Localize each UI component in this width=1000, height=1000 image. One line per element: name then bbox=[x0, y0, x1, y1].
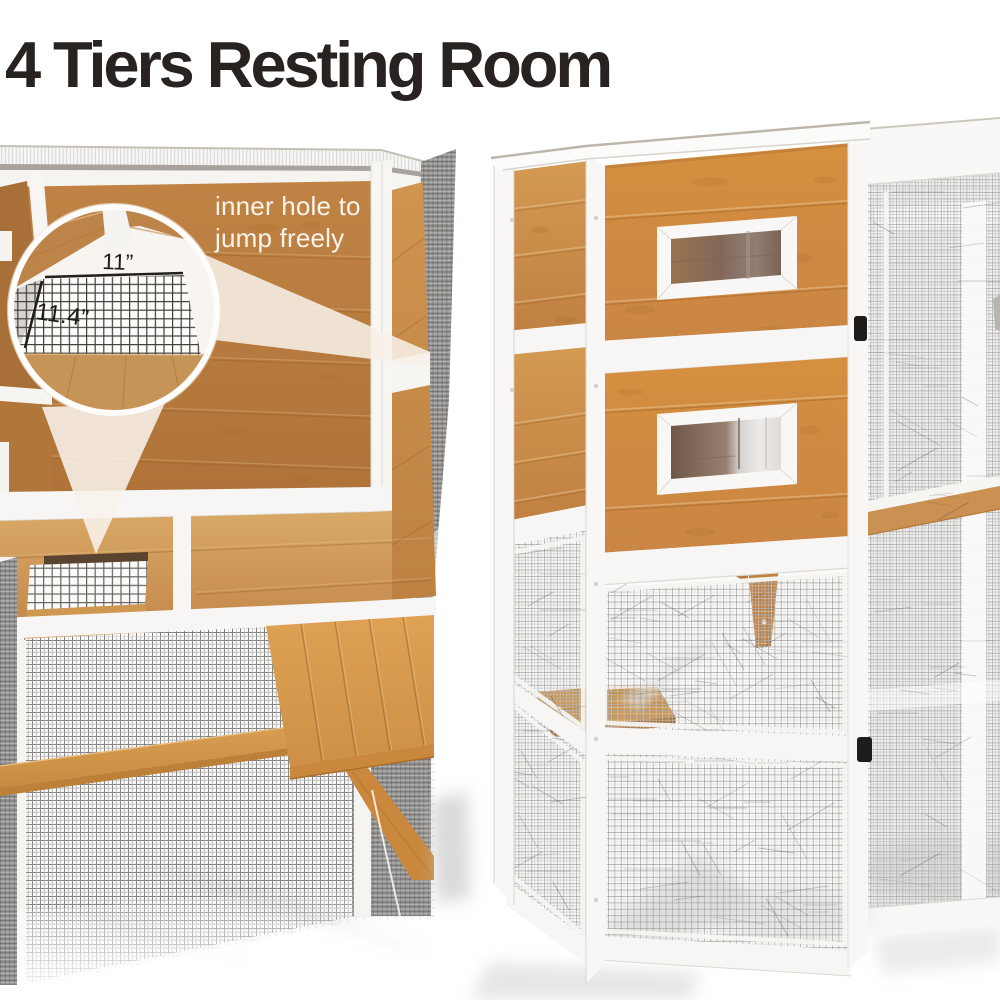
svg-text:4 Tiers Resting Room: 4 Tiers Resting Room bbox=[5, 28, 610, 101]
svg-text:jump freely: jump freely bbox=[214, 223, 344, 253]
svg-text:11”: 11” bbox=[102, 249, 134, 275]
svg-text:inner hole to: inner hole to bbox=[215, 191, 361, 221]
